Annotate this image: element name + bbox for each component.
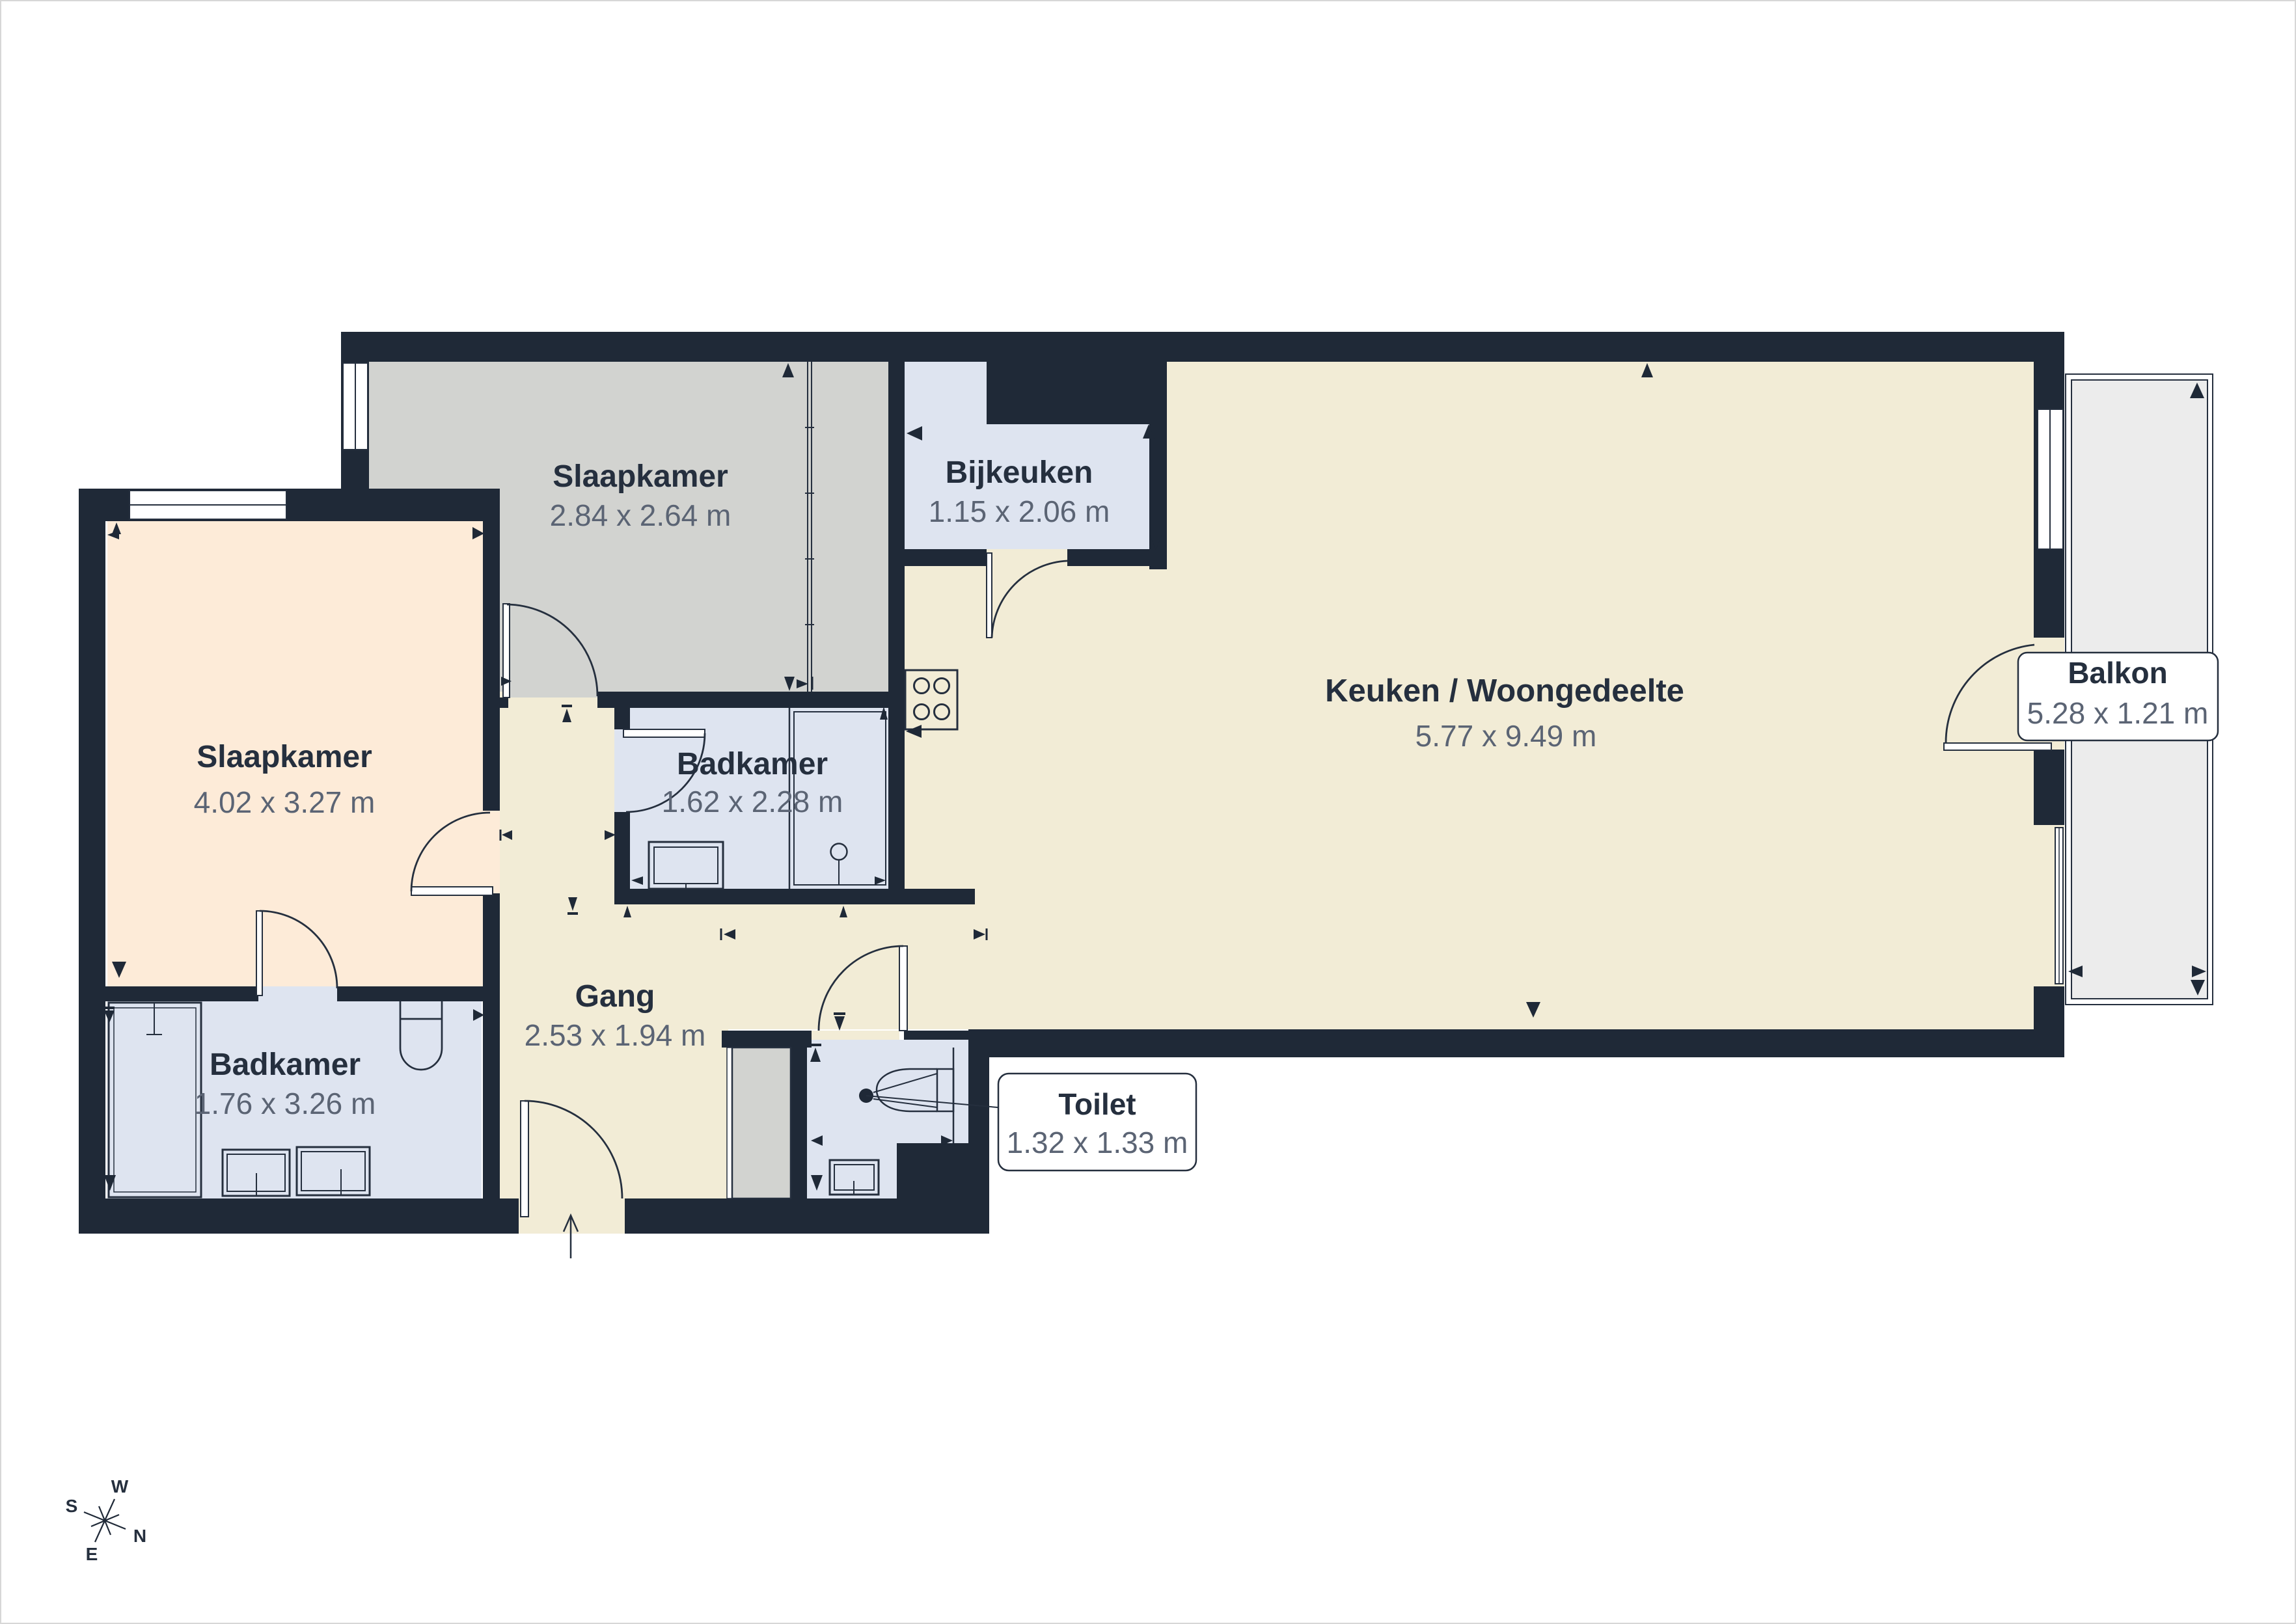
svg-text:S: S — [66, 1496, 78, 1516]
svg-text:Balkon: Balkon — [2068, 656, 2167, 690]
svg-text:Bijkeuken: Bijkeuken — [946, 455, 1093, 490]
svg-text:W: W — [111, 1476, 129, 1496]
svg-text:Badkamer: Badkamer — [677, 747, 828, 781]
svg-text:Gang: Gang — [575, 979, 655, 1014]
svg-text:1.32 x 1.33 m: 1.32 x 1.33 m — [1007, 1126, 1188, 1159]
svg-text:Slaapkamer: Slaapkamer — [197, 740, 372, 774]
svg-text:Keuken / Woongedeelte: Keuken / Woongedeelte — [1325, 673, 1684, 709]
svg-text:2.53 x 1.94 m: 2.53 x 1.94 m — [525, 1018, 706, 1052]
svg-text:E: E — [86, 1544, 98, 1564]
svg-text:1.62 x 2.28 m: 1.62 x 2.28 m — [662, 785, 843, 819]
svg-text:1.15 x 2.06 m: 1.15 x 2.06 m — [929, 494, 1110, 528]
svg-text:Badkamer: Badkamer — [210, 1048, 361, 1082]
svg-text:Slaapkamer: Slaapkamer — [553, 459, 728, 494]
svg-text:N: N — [133, 1526, 146, 1546]
svg-text:5.28 x 1.21 m: 5.28 x 1.21 m — [2027, 696, 2209, 730]
svg-text:1.76 x 3.26 m: 1.76 x 3.26 m — [195, 1087, 376, 1120]
svg-text:2.84 x 2.64 m: 2.84 x 2.64 m — [550, 498, 731, 532]
svg-text:4.02 x 3.27 m: 4.02 x 3.27 m — [194, 785, 376, 819]
svg-text:Toilet: Toilet — [1058, 1087, 1136, 1121]
svg-text:5.77 x 9.49 m: 5.77 x 9.49 m — [1415, 719, 1597, 753]
